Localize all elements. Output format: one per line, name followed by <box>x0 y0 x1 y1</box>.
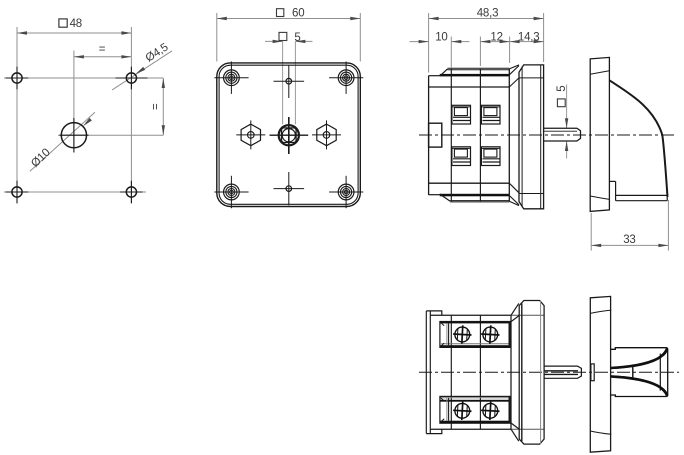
svg-text:48,3: 48,3 <box>477 8 499 20</box>
svg-text:12: 12 <box>490 32 502 44</box>
svg-text:=: = <box>150 103 162 110</box>
svg-text:5: 5 <box>556 85 568 91</box>
svg-text:14,3: 14,3 <box>518 32 540 44</box>
svg-text:=: = <box>99 43 106 55</box>
svg-text:Ø10: Ø10 <box>29 147 53 170</box>
svg-text:5: 5 <box>294 32 300 44</box>
svg-text:33: 33 <box>623 234 635 246</box>
svg-text:60: 60 <box>292 8 304 20</box>
svg-text:10: 10 <box>435 32 447 44</box>
svg-text:48: 48 <box>70 18 82 30</box>
